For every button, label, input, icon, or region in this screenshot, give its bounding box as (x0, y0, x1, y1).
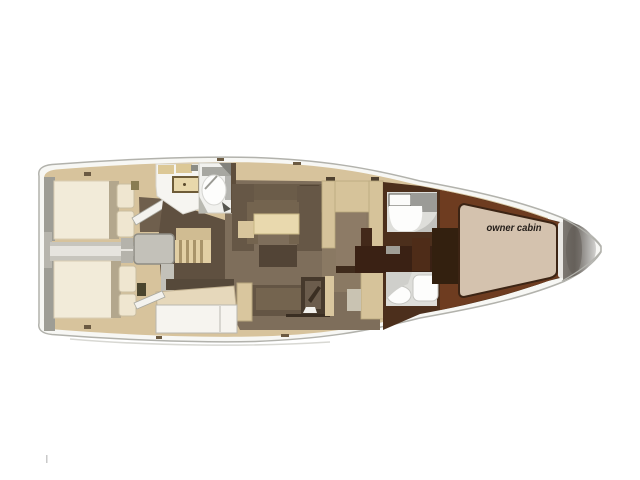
svg-text:owner cabin: owner cabin (487, 222, 542, 234)
